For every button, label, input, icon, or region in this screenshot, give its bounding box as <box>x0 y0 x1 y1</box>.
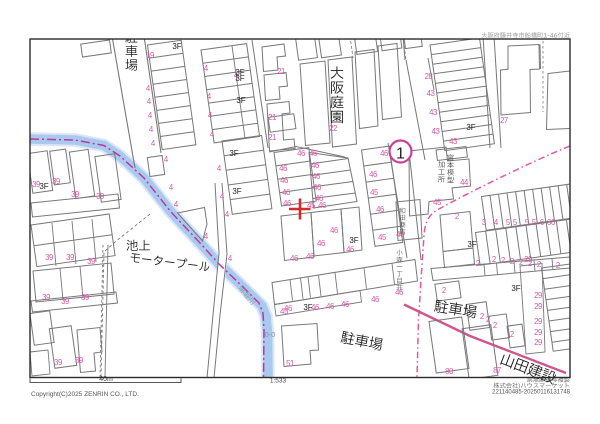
svg-text:46: 46 <box>297 149 305 158</box>
svg-text:43: 43 <box>429 108 437 117</box>
svg-text:46: 46 <box>376 205 384 214</box>
svg-text:4: 4 <box>208 111 213 120</box>
svg-text:5: 5 <box>532 218 537 227</box>
svg-text:3F: 3F <box>236 96 245 105</box>
svg-text:46: 46 <box>312 172 320 181</box>
svg-text:46: 46 <box>317 239 325 248</box>
svg-text:46: 46 <box>318 201 326 210</box>
svg-text:44: 44 <box>460 178 469 187</box>
svg-text:46: 46 <box>279 164 287 173</box>
svg-text:46: 46 <box>380 149 388 158</box>
svg-text:1: 1 <box>396 146 405 163</box>
svg-text:3: 3 <box>482 218 486 227</box>
svg-text:39: 39 <box>75 356 83 365</box>
svg-text:3F: 3F <box>303 303 312 312</box>
svg-text:46: 46 <box>311 161 319 170</box>
svg-text:2: 2 <box>556 261 560 270</box>
svg-text:4: 4 <box>148 111 153 120</box>
svg-text:21: 21 <box>277 67 285 76</box>
svg-text:21: 21 <box>268 113 276 122</box>
svg-text:2: 2 <box>455 212 459 221</box>
svg-text:5: 5 <box>513 218 518 227</box>
svg-text:45: 45 <box>280 307 289 316</box>
svg-text:221140485-20250116131748: 221140485-20250116131748 <box>492 390 571 396</box>
svg-text:29: 29 <box>534 302 542 311</box>
svg-text:39: 39 <box>61 297 69 306</box>
svg-text:4: 4 <box>204 64 209 73</box>
svg-text:22: 22 <box>329 124 337 133</box>
svg-text:29: 29 <box>534 291 542 300</box>
svg-text:4: 4 <box>217 164 222 173</box>
svg-text:3F: 3F <box>466 123 475 132</box>
svg-text:4: 4 <box>149 125 154 134</box>
svg-text:46: 46 <box>346 245 354 254</box>
svg-text:3F: 3F <box>511 284 520 293</box>
svg-text:46: 46 <box>283 199 291 208</box>
svg-text:5: 5 <box>506 218 511 227</box>
svg-text:2: 2 <box>486 315 490 324</box>
svg-text:1:533: 1:533 <box>270 378 287 385</box>
svg-text:29: 29 <box>524 255 532 264</box>
svg-text:45: 45 <box>370 188 379 197</box>
svg-text:4: 4 <box>220 192 225 201</box>
svg-text:2: 2 <box>492 255 496 264</box>
svg-text:3F: 3F <box>39 182 48 191</box>
svg-text:2: 2 <box>510 330 514 339</box>
svg-text:5: 5 <box>525 218 530 227</box>
svg-text:2: 2 <box>442 286 446 295</box>
svg-text:3F: 3F <box>172 42 181 51</box>
svg-text:19: 19 <box>146 51 154 60</box>
svg-text:80: 80 <box>445 367 454 376</box>
svg-text:43: 43 <box>432 127 440 136</box>
svg-text:51: 51 <box>286 359 294 368</box>
svg-text:43: 43 <box>449 137 457 146</box>
svg-text:4: 4 <box>494 218 499 227</box>
svg-text:39: 39 <box>87 257 95 266</box>
svg-text:3F: 3F <box>232 187 241 196</box>
svg-text:4: 4 <box>164 155 169 164</box>
svg-text:45: 45 <box>433 198 442 207</box>
svg-text:39: 39 <box>45 253 53 262</box>
svg-text:2: 2 <box>537 260 541 269</box>
svg-text:2: 2 <box>493 321 497 330</box>
svg-text:0-0: 0-0 <box>265 330 276 339</box>
svg-text:39: 39 <box>96 192 104 201</box>
svg-text:2: 2 <box>519 258 523 267</box>
svg-text:2: 2 <box>476 259 480 268</box>
svg-text:4: 4 <box>147 97 152 106</box>
svg-text:46: 46 <box>341 300 349 309</box>
svg-text:27: 27 <box>500 116 508 125</box>
svg-text:2: 2 <box>510 257 514 266</box>
svg-text:46: 46 <box>306 252 314 261</box>
svg-text:6: 6 <box>540 218 544 227</box>
svg-text:43: 43 <box>427 89 435 98</box>
svg-text:46: 46 <box>326 302 334 311</box>
svg-text:46: 46 <box>330 226 338 235</box>
svg-text:39: 39 <box>42 293 50 302</box>
svg-text:4: 4 <box>169 183 174 192</box>
svg-text:46: 46 <box>313 183 321 192</box>
svg-text:4: 4 <box>151 139 156 148</box>
svg-text:46: 46 <box>280 176 288 185</box>
svg-text:29: 29 <box>534 338 542 347</box>
svg-text:2: 2 <box>501 256 505 265</box>
svg-text:4: 4 <box>207 92 212 101</box>
svg-text:46: 46 <box>309 149 317 158</box>
svg-text:39: 39 <box>54 358 62 367</box>
svg-text:39: 39 <box>71 190 79 199</box>
svg-text:87: 87 <box>493 366 501 375</box>
svg-text:4: 4 <box>210 130 215 139</box>
svg-text:29: 29 <box>534 328 542 337</box>
svg-text:39: 39 <box>52 177 60 186</box>
svg-text:46: 46 <box>371 295 379 304</box>
svg-text:46: 46 <box>282 188 290 197</box>
svg-text:39: 39 <box>81 293 89 302</box>
svg-text:4: 4 <box>204 232 209 241</box>
svg-text:46: 46 <box>290 254 298 263</box>
svg-text:3F: 3F <box>467 240 476 249</box>
svg-text:Copyright(C)2025 ZENRIN CO., L: Copyright(C)2025 ZENRIN CO., LTD. <box>31 391 139 398</box>
svg-text:4: 4 <box>174 200 179 209</box>
svg-text:39: 39 <box>66 253 74 262</box>
svg-text:3F: 3F <box>349 236 358 245</box>
svg-text:3F: 3F <box>235 74 244 83</box>
svg-text:6: 6 <box>551 218 555 227</box>
svg-text:4: 4 <box>228 254 233 263</box>
svg-text:3F: 3F <box>229 149 238 158</box>
svg-text:28: 28 <box>425 72 433 81</box>
svg-text:2: 2 <box>480 312 484 321</box>
svg-text:4: 4 <box>146 84 151 93</box>
svg-text:29: 29 <box>534 317 542 326</box>
svg-text:21: 21 <box>268 133 276 142</box>
svg-text:4: 4 <box>225 210 230 219</box>
svg-text:46: 46 <box>369 170 377 179</box>
svg-text:46: 46 <box>395 288 403 297</box>
svg-text:45: 45 <box>378 233 387 242</box>
